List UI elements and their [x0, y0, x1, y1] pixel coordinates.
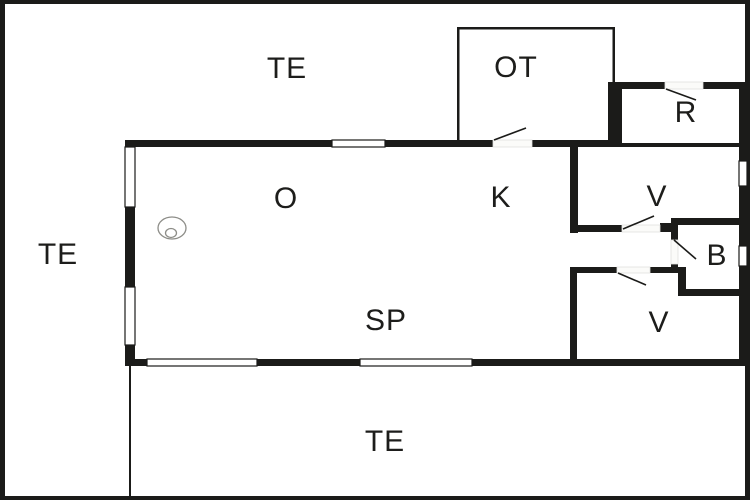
window-left-upper	[125, 147, 135, 207]
window-left-lower	[125, 287, 135, 345]
door-opening-v-upper	[622, 225, 660, 232]
room-label-v-lower: V	[648, 306, 669, 339]
door-opening-v-lower	[617, 267, 650, 273]
room-label-ot: OT	[494, 51, 538, 84]
room-label-te-top: TE	[267, 52, 307, 85]
room-label-b: B	[706, 239, 727, 272]
terrace-boundary-line	[129, 366, 131, 496]
floorplan-svg: TE OT R O K V TE B V SP TE	[0, 0, 750, 500]
room-label-te-bottom: TE	[365, 425, 405, 458]
window-top-wall	[332, 140, 385, 147]
room-label-o: O	[274, 182, 298, 215]
door-leaf-ot	[494, 128, 526, 140]
window-bottom-terrace	[360, 359, 472, 366]
room-labels: TE OT R O K V TE B V SP TE	[38, 51, 728, 458]
doors	[493, 82, 703, 285]
window-right-upper	[739, 161, 747, 186]
window-bottom-left	[147, 359, 257, 366]
room-label-r: R	[675, 96, 698, 129]
stove-icon	[158, 217, 186, 239]
room-label-sp: SP	[365, 304, 407, 337]
room-label-te-left: TE	[38, 238, 78, 271]
door-leaf-v-lower	[618, 273, 646, 285]
door-opening-r	[665, 82, 703, 89]
door-opening-ot	[493, 140, 532, 147]
window-right-lower	[739, 246, 747, 266]
room-label-v-upper: V	[646, 180, 667, 213]
room-label-k: K	[490, 181, 511, 214]
floorplan-page: TE OT R O K V TE B V SP TE	[0, 0, 750, 500]
